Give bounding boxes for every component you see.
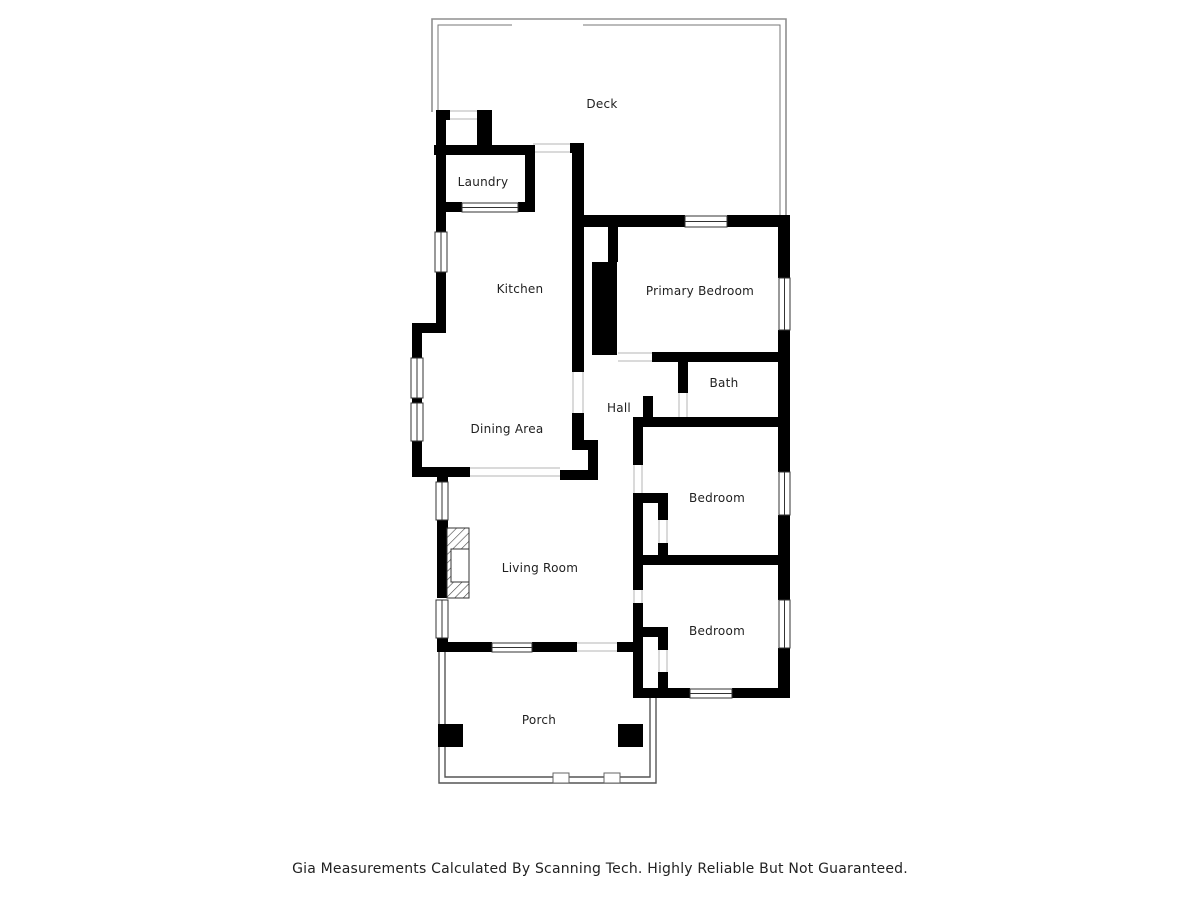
disclaimer: Gia Measurements Calculated By Scanning … [292, 861, 908, 877]
floor-plan: Deck Laundry Kitchen Primary Bedroom Bat… [0, 0, 1200, 900]
room-label-bath: Bath [710, 376, 739, 390]
door-openings [450, 111, 687, 672]
fireplace [447, 528, 469, 598]
porch-posts [438, 724, 643, 747]
room-label-deck: Deck [586, 97, 617, 111]
walls [412, 110, 790, 698]
floor-plan-page: Deck Laundry Kitchen Primary Bedroom Bat… [0, 0, 1200, 900]
room-label-kitchen: Kitchen [497, 282, 544, 296]
porch-post-right [618, 724, 643, 747]
room-label-bedroom-middle: Bedroom [689, 491, 745, 505]
firebox [451, 549, 469, 582]
porch-step-marks [553, 773, 620, 783]
room-label-living-room: Living Room [502, 561, 578, 575]
room-label-porch: Porch [522, 713, 556, 727]
room-label-dining-area: Dining Area [471, 422, 544, 436]
room-label-primary-bedroom: Primary Bedroom [646, 284, 754, 298]
room-label-laundry: Laundry [458, 175, 509, 189]
chimney-block [592, 262, 617, 355]
porch-post-left [438, 724, 463, 747]
room-label-hall: Hall [607, 401, 631, 415]
room-label-bedroom-bottom: Bedroom [689, 624, 745, 638]
